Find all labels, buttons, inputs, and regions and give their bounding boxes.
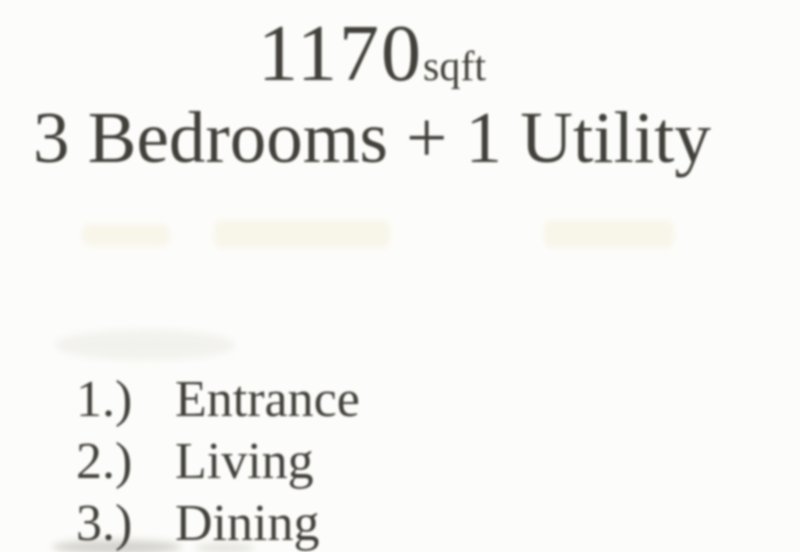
area-unit: sqft (423, 44, 486, 90)
legend-item-number: 1.) (76, 369, 175, 431)
floorplan-legend-page: 1170sqft 3 Bedrooms + 1 Utility 1.) Entr… (0, 0, 800, 552)
legend-item-number: 2.) (76, 431, 175, 493)
printed-text-block: 1170sqft 3 Bedrooms + 1 Utility 1.) Entr… (0, 0, 744, 552)
area-value: 1170 (258, 10, 423, 98)
list-item: 2.) Living (76, 431, 360, 493)
page-title: 3 Bedrooms + 1 Utility (0, 100, 744, 177)
area-line: 1170sqft (0, 14, 744, 94)
legend-item-label: Dining (175, 493, 319, 552)
legend-item-label: Entrance (175, 369, 360, 431)
legend-list: 1.) Entrance 2.) Living 3.) Dining (76, 369, 360, 552)
legend-item-label: Living (175, 431, 314, 493)
legend-item-number: 3.) (76, 493, 175, 552)
list-item: 1.) Entrance (76, 369, 360, 431)
list-item: 3.) Dining (76, 493, 360, 552)
